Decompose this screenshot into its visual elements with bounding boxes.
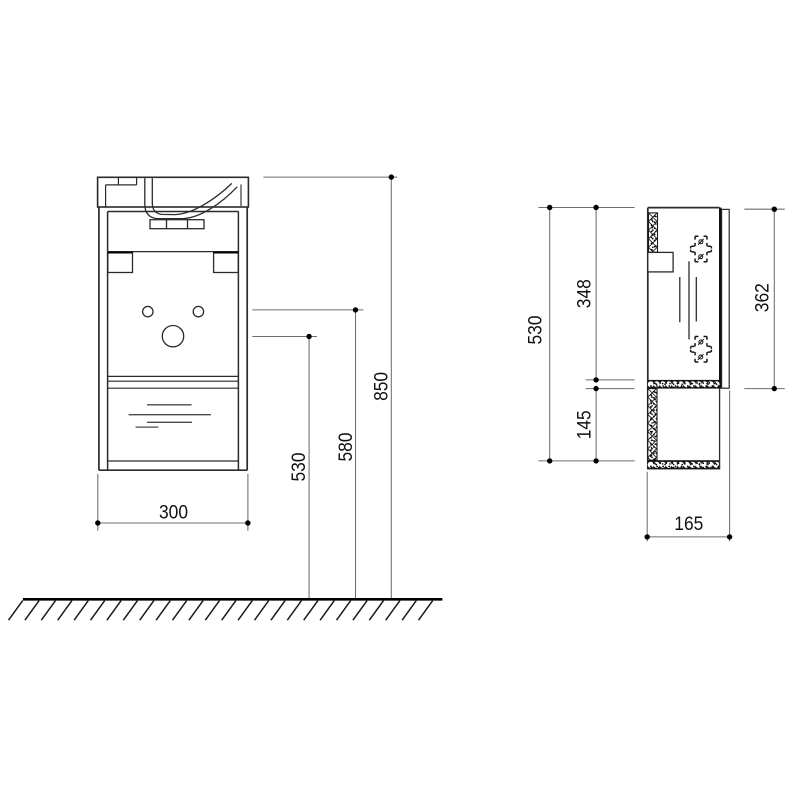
svg-text:165: 165 bbox=[674, 514, 703, 535]
svg-text:348: 348 bbox=[574, 279, 595, 308]
svg-text:530: 530 bbox=[525, 316, 546, 345]
svg-text:850: 850 bbox=[371, 372, 392, 401]
svg-text:145: 145 bbox=[574, 410, 595, 439]
svg-text:300: 300 bbox=[159, 503, 188, 524]
svg-text:530: 530 bbox=[289, 453, 310, 482]
svg-text:580: 580 bbox=[336, 433, 357, 462]
svg-text:362: 362 bbox=[752, 283, 773, 312]
